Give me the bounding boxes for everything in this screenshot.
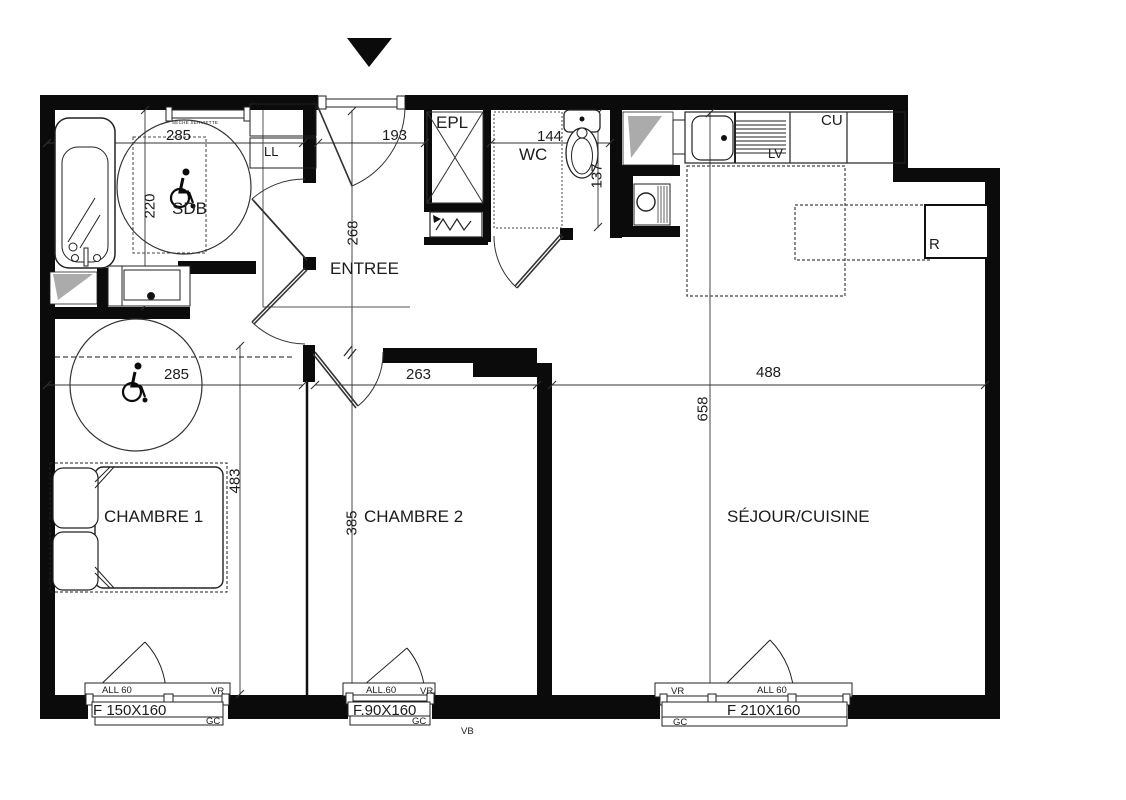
window1-shutter-label: VR [211, 686, 224, 697]
room-label-entree: ENTREE [330, 259, 399, 279]
duct-niche-kitchen [623, 112, 673, 165]
dim-sdb-width: 285 [166, 127, 191, 144]
window1-frame-label: F 150X160 [93, 702, 166, 719]
window3-sill-label: ALL 60 [757, 685, 787, 696]
dim-entree-width: 193 [382, 127, 407, 144]
kitchen-unit-label: CU [821, 112, 843, 129]
room-label-sdb: SDB [172, 199, 207, 219]
dim-sdb-height: 220 [142, 193, 159, 218]
kitchen-counter [673, 112, 905, 163]
wheelchair-icon [123, 363, 148, 403]
bathtub [55, 118, 115, 268]
window3-frame-label: F 210X160 [727, 702, 800, 719]
window2-sill-label: ALL.60 [366, 685, 396, 696]
walls [40, 95, 1000, 719]
entrance-marker-icon [347, 38, 392, 67]
dim-chambre1-width: 285 [164, 366, 189, 383]
room-label-chambre1: CHAMBRE 1 [104, 507, 203, 527]
window2-tag-label: GC [412, 716, 426, 727]
water-heater [634, 184, 670, 225]
bed [50, 463, 227, 592]
vanity-sink [108, 266, 190, 306]
guide-dashed-lines [55, 112, 930, 357]
dim-chambre2-width: 263 [406, 366, 431, 383]
towel-dryer-label: SECHE SERVIETTE [172, 120, 218, 125]
washing-machine-label: LL [264, 144, 278, 159]
window1-sill-label: ALL 60 [102, 685, 132, 696]
room-label-wc: WC [519, 145, 547, 165]
floorplan-page: SDB ENTREE EPL WC CHAMBRE 1 CHAMBRE 2 SÉ… [0, 0, 1126, 800]
duct-niche-left [50, 272, 97, 304]
window1-tag-label: GC [206, 716, 220, 727]
radiator [430, 212, 482, 237]
window3-shutter-label: VR [671, 686, 684, 697]
window2-frame-label: F.90X160 [353, 702, 416, 719]
dim-wc-width: 144 [537, 128, 562, 145]
dim-chambre2-height: 385 [344, 510, 361, 535]
dim-entree-height: 268 [345, 220, 362, 245]
dimension-lines [43, 106, 989, 699]
window3-tag-label: GC [673, 717, 687, 728]
dishwasher-label: LV [768, 146, 783, 161]
entrance-threshold [318, 96, 405, 109]
dim-wc-height: 137 [589, 163, 606, 188]
room-label-epl: EPL [436, 113, 468, 133]
room-label-sejour: SÉJOUR/CUISINE [727, 507, 870, 527]
fridge-label: R [929, 236, 940, 253]
room-label-chambre2: CHAMBRE 2 [364, 507, 463, 527]
dim-sejour-width: 488 [756, 364, 781, 381]
vb-note-label: VB [461, 726, 474, 737]
dim-chambre1-height: 483 [227, 468, 244, 493]
window2-shutter-label: VR [420, 686, 433, 697]
floorplan-drawing [0, 0, 1126, 800]
dim-sejour-height: 658 [695, 396, 712, 421]
